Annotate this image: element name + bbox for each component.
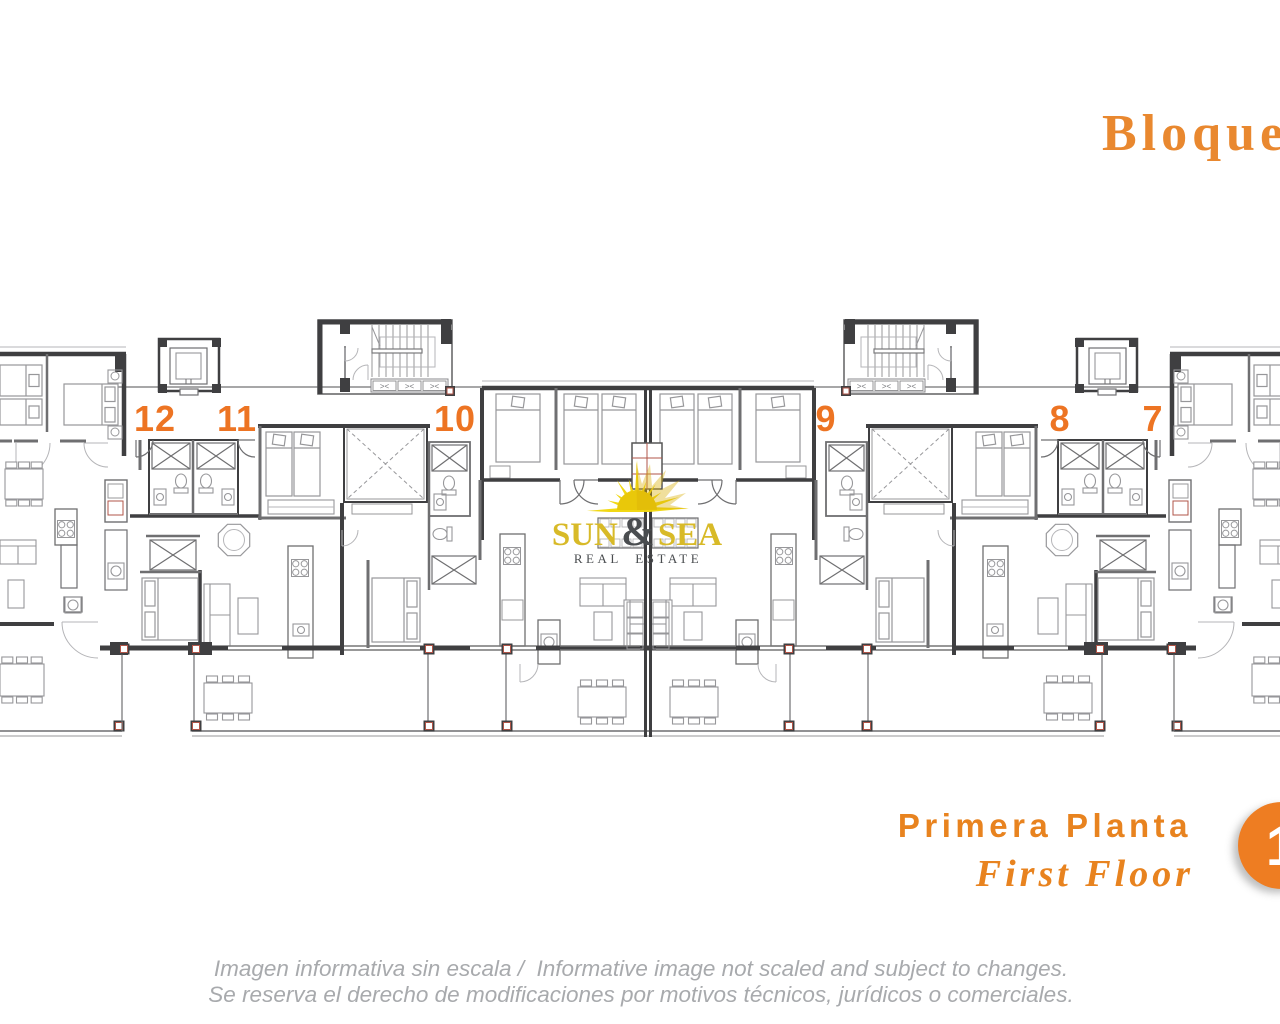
svg-text:><: >< xyxy=(380,382,390,391)
svg-text:><: >< xyxy=(430,382,440,391)
svg-text:><: >< xyxy=(405,382,415,391)
